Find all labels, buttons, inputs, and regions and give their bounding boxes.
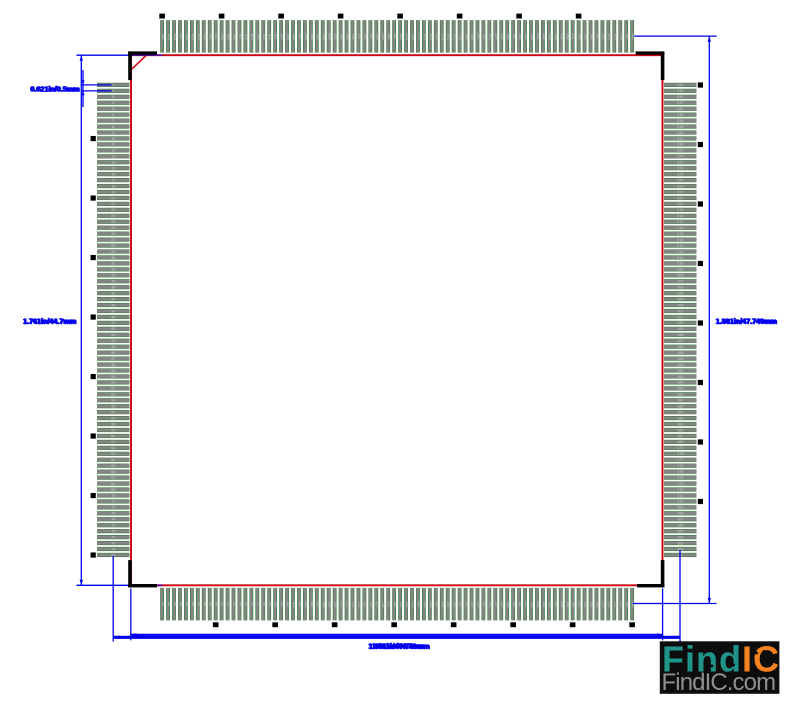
svg-text:51: 51 xyxy=(111,381,115,385)
svg-text:50: 50 xyxy=(111,375,115,379)
svg-text:199: 199 xyxy=(677,327,683,331)
svg-text:224: 224 xyxy=(677,178,683,182)
svg-text:52: 52 xyxy=(111,387,115,391)
svg-text:141: 141 xyxy=(518,601,522,607)
svg-text:245: 245 xyxy=(607,33,611,39)
svg-text:99: 99 xyxy=(268,602,272,606)
svg-text:30: 30 xyxy=(111,256,115,260)
svg-text:320: 320 xyxy=(161,33,165,39)
svg-text:135: 135 xyxy=(482,601,486,607)
svg-text:75: 75 xyxy=(111,524,115,528)
svg-text:67: 67 xyxy=(111,476,115,480)
svg-text:37: 37 xyxy=(111,297,115,301)
svg-text:72: 72 xyxy=(111,506,115,510)
svg-text:144: 144 xyxy=(536,601,540,607)
svg-text:170: 170 xyxy=(677,500,683,504)
svg-text:60: 60 xyxy=(111,434,115,438)
svg-text:123: 123 xyxy=(411,601,415,607)
svg-text:160: 160 xyxy=(631,601,635,607)
svg-text:65: 65 xyxy=(111,464,115,468)
svg-text:212: 212 xyxy=(677,250,683,254)
svg-text:36: 36 xyxy=(111,291,115,295)
svg-text:113: 113 xyxy=(352,601,356,607)
svg-text:102: 102 xyxy=(286,601,290,607)
svg-text:223: 223 xyxy=(677,184,683,188)
svg-text:172: 172 xyxy=(677,488,683,492)
svg-text:40: 40 xyxy=(111,315,115,319)
svg-text:95: 95 xyxy=(244,602,248,606)
svg-text:218: 218 xyxy=(677,214,683,218)
svg-text:2: 2 xyxy=(112,89,114,93)
svg-text:213: 213 xyxy=(677,244,683,248)
svg-text:156: 156 xyxy=(607,601,611,607)
svg-text:309: 309 xyxy=(227,33,231,39)
svg-text:29: 29 xyxy=(111,250,115,254)
svg-text:293: 293 xyxy=(322,33,326,39)
svg-text:117: 117 xyxy=(375,601,379,607)
svg-text:285: 285 xyxy=(369,33,373,39)
svg-text:296: 296 xyxy=(304,33,308,39)
svg-text:263: 263 xyxy=(500,33,504,39)
svg-text:41: 41 xyxy=(111,321,115,325)
svg-text:244: 244 xyxy=(613,33,617,39)
svg-text:217: 217 xyxy=(677,220,683,224)
svg-text:181: 181 xyxy=(677,434,683,438)
svg-text:307: 307 xyxy=(238,33,242,39)
svg-text:281: 281 xyxy=(393,33,397,39)
svg-text:312: 312 xyxy=(209,33,213,39)
svg-text:63: 63 xyxy=(111,452,115,456)
svg-text:210: 210 xyxy=(677,262,683,266)
svg-text:34: 34 xyxy=(111,280,115,284)
svg-text:85: 85 xyxy=(185,602,189,606)
svg-text:298: 298 xyxy=(292,33,296,39)
svg-text:164: 164 xyxy=(677,535,683,539)
svg-text:256: 256 xyxy=(542,33,546,39)
svg-text:250: 250 xyxy=(578,33,582,39)
svg-text:153: 153 xyxy=(590,601,594,607)
svg-text:59: 59 xyxy=(111,428,115,432)
svg-text:126: 126 xyxy=(429,601,433,607)
svg-text:31: 31 xyxy=(111,262,115,266)
svg-text:168: 168 xyxy=(677,512,683,516)
svg-text:83: 83 xyxy=(173,602,177,606)
svg-text:131: 131 xyxy=(459,601,463,607)
svg-text:97: 97 xyxy=(256,602,260,606)
svg-text:8: 8 xyxy=(112,125,114,129)
svg-text:119: 119 xyxy=(387,601,391,607)
svg-text:134: 134 xyxy=(476,601,480,607)
svg-text:303: 303 xyxy=(262,33,266,39)
svg-text:267: 267 xyxy=(476,33,480,39)
svg-text:287: 287 xyxy=(357,33,361,39)
svg-text:103: 103 xyxy=(292,601,296,607)
svg-text:295: 295 xyxy=(310,33,314,39)
svg-text:33: 33 xyxy=(111,274,115,278)
svg-text:184: 184 xyxy=(677,416,683,420)
svg-text:118: 118 xyxy=(381,601,385,607)
svg-text:145: 145 xyxy=(542,601,546,607)
svg-text:310: 310 xyxy=(221,33,225,39)
svg-text:87: 87 xyxy=(197,602,201,606)
svg-text:76: 76 xyxy=(111,529,115,533)
svg-text:259: 259 xyxy=(524,33,528,39)
svg-text:248: 248 xyxy=(590,33,594,39)
svg-text:294: 294 xyxy=(316,33,320,39)
svg-text:253: 253 xyxy=(560,33,564,39)
svg-text:115: 115 xyxy=(363,601,367,607)
svg-text:159: 159 xyxy=(625,601,629,607)
svg-text:315: 315 xyxy=(191,33,195,39)
svg-text:197: 197 xyxy=(677,339,683,343)
svg-text:235: 235 xyxy=(677,113,683,117)
svg-text:7: 7 xyxy=(112,119,114,123)
svg-text:84: 84 xyxy=(179,602,183,606)
svg-text:96: 96 xyxy=(250,602,254,606)
svg-text:169: 169 xyxy=(677,506,683,510)
svg-text:89: 89 xyxy=(209,602,213,606)
svg-text:42: 42 xyxy=(111,327,115,331)
svg-text:21: 21 xyxy=(111,202,115,206)
svg-text:189: 189 xyxy=(677,387,683,391)
svg-text:11: 11 xyxy=(111,143,115,147)
svg-text:314: 314 xyxy=(197,33,201,39)
svg-text:108: 108 xyxy=(322,601,326,607)
svg-text:229: 229 xyxy=(677,149,683,153)
svg-text:288: 288 xyxy=(352,33,356,39)
svg-text:268: 268 xyxy=(471,33,475,39)
svg-text:221: 221 xyxy=(677,196,683,200)
svg-text:149: 149 xyxy=(566,601,570,607)
svg-text:266: 266 xyxy=(482,33,486,39)
svg-text:22: 22 xyxy=(111,208,115,212)
svg-text:273: 273 xyxy=(441,33,445,39)
svg-text:260: 260 xyxy=(518,33,522,39)
svg-text:19: 19 xyxy=(111,190,115,194)
svg-text:173: 173 xyxy=(677,482,683,486)
svg-text:306: 306 xyxy=(244,33,248,39)
svg-text:231: 231 xyxy=(677,137,683,141)
svg-text:FindIC.com: FindIC.com xyxy=(662,669,776,696)
svg-text:297: 297 xyxy=(298,33,302,39)
svg-text:26: 26 xyxy=(111,232,115,236)
svg-text:116: 116 xyxy=(369,601,373,607)
svg-text:25: 25 xyxy=(111,226,115,230)
svg-text:278: 278 xyxy=(411,33,415,39)
svg-text:139: 139 xyxy=(506,601,510,607)
svg-text:185: 185 xyxy=(677,410,683,414)
svg-text:209: 209 xyxy=(677,268,683,272)
svg-text:101: 101 xyxy=(280,601,284,607)
svg-text:155: 155 xyxy=(601,601,605,607)
svg-text:264: 264 xyxy=(494,33,498,39)
svg-text:14: 14 xyxy=(111,161,115,165)
svg-text:6: 6 xyxy=(112,113,114,117)
svg-text:79: 79 xyxy=(111,547,115,551)
svg-text:120: 120 xyxy=(393,601,397,607)
svg-text:187: 187 xyxy=(677,399,683,403)
svg-text:98: 98 xyxy=(262,602,266,606)
svg-text:81: 81 xyxy=(161,602,165,606)
svg-text:154: 154 xyxy=(595,601,599,607)
svg-text:73: 73 xyxy=(111,512,115,516)
svg-text:13: 13 xyxy=(111,155,115,159)
svg-text:107: 107 xyxy=(316,601,320,607)
svg-text:258: 258 xyxy=(530,33,534,39)
svg-text:39: 39 xyxy=(111,309,115,313)
svg-text:308: 308 xyxy=(233,33,237,39)
svg-text:142: 142 xyxy=(524,601,528,607)
svg-text:226: 226 xyxy=(677,167,683,171)
svg-text:18: 18 xyxy=(111,184,115,188)
svg-text:313: 313 xyxy=(203,33,207,39)
svg-text:150: 150 xyxy=(572,601,576,607)
svg-text:163: 163 xyxy=(677,541,683,545)
svg-text:180: 180 xyxy=(677,440,683,444)
svg-text:57: 57 xyxy=(111,416,115,420)
svg-text:148: 148 xyxy=(560,601,564,607)
svg-text:4: 4 xyxy=(112,101,114,105)
svg-text:318: 318 xyxy=(173,33,177,39)
svg-text:243: 243 xyxy=(619,33,623,39)
svg-text:109: 109 xyxy=(328,601,332,607)
svg-text:304: 304 xyxy=(256,33,260,39)
svg-text:195: 195 xyxy=(677,351,683,355)
svg-text:62: 62 xyxy=(111,446,115,450)
svg-text:56: 56 xyxy=(111,410,115,414)
svg-text:261: 261 xyxy=(512,33,516,39)
svg-text:274: 274 xyxy=(435,33,439,39)
svg-text:242: 242 xyxy=(625,33,629,39)
svg-text:277: 277 xyxy=(417,33,421,39)
svg-text:166: 166 xyxy=(677,524,683,528)
svg-text:124: 124 xyxy=(417,601,421,607)
svg-text:179: 179 xyxy=(677,446,683,450)
svg-text:1.761in/44.7mm: 1.761in/44.7mm xyxy=(24,317,77,326)
svg-text:132: 132 xyxy=(465,601,469,607)
svg-text:146: 146 xyxy=(548,601,552,607)
svg-text:289: 289 xyxy=(346,33,350,39)
svg-text:207: 207 xyxy=(677,280,683,284)
svg-text:292: 292 xyxy=(328,33,332,39)
svg-text:106: 106 xyxy=(310,601,314,607)
svg-text:0.021in/0.5mm: 0.021in/0.5mm xyxy=(31,85,80,94)
svg-text:68: 68 xyxy=(111,482,115,486)
svg-text:247: 247 xyxy=(595,33,599,39)
svg-text:71: 71 xyxy=(111,500,115,504)
svg-text:100: 100 xyxy=(274,601,278,607)
svg-text:311: 311 xyxy=(215,33,219,39)
svg-text:91: 91 xyxy=(221,602,225,606)
svg-text:230: 230 xyxy=(677,143,683,147)
svg-text:202: 202 xyxy=(677,309,683,313)
svg-text:78: 78 xyxy=(111,541,115,545)
svg-text:206: 206 xyxy=(677,286,683,290)
svg-text:284: 284 xyxy=(375,33,379,39)
svg-text:140: 140 xyxy=(512,601,516,607)
svg-text:225: 225 xyxy=(677,172,683,176)
svg-text:66: 66 xyxy=(111,470,115,474)
svg-text:201: 201 xyxy=(677,315,683,319)
svg-text:176: 176 xyxy=(677,464,683,468)
svg-text:232: 232 xyxy=(677,131,683,135)
svg-text:317: 317 xyxy=(179,33,183,39)
svg-text:174: 174 xyxy=(677,476,683,480)
svg-text:205: 205 xyxy=(677,291,683,295)
svg-text:121: 121 xyxy=(399,601,403,607)
svg-text:252: 252 xyxy=(566,33,570,39)
svg-text:257: 257 xyxy=(536,33,540,39)
svg-text:110: 110 xyxy=(334,601,338,607)
svg-text:228: 228 xyxy=(677,155,683,159)
svg-text:1.881in/47.749mm: 1.881in/47.749mm xyxy=(369,642,430,651)
svg-text:276: 276 xyxy=(423,33,427,39)
svg-text:47: 47 xyxy=(111,357,115,361)
svg-text:23: 23 xyxy=(111,214,115,218)
svg-text:157: 157 xyxy=(613,601,617,607)
svg-text:55: 55 xyxy=(111,405,115,409)
svg-text:74: 74 xyxy=(111,518,115,522)
svg-text:129: 129 xyxy=(447,601,451,607)
svg-text:182: 182 xyxy=(677,428,683,432)
svg-text:128: 128 xyxy=(441,601,445,607)
svg-text:246: 246 xyxy=(601,33,605,39)
svg-text:92: 92 xyxy=(227,602,231,606)
svg-text:280: 280 xyxy=(399,33,403,39)
svg-text:43: 43 xyxy=(111,333,115,337)
svg-text:239: 239 xyxy=(677,89,683,93)
svg-text:77: 77 xyxy=(111,535,115,539)
svg-text:283: 283 xyxy=(381,33,385,39)
svg-text:186: 186 xyxy=(677,405,683,409)
svg-text:137: 137 xyxy=(494,601,498,607)
svg-text:190: 190 xyxy=(677,381,683,385)
svg-text:299: 299 xyxy=(286,33,290,39)
svg-text:238: 238 xyxy=(677,95,683,99)
svg-text:204: 204 xyxy=(677,297,683,301)
svg-text:136: 136 xyxy=(488,601,492,607)
svg-text:49: 49 xyxy=(111,369,115,373)
svg-text:234: 234 xyxy=(677,119,683,123)
svg-text:319: 319 xyxy=(167,33,171,39)
svg-text:251: 251 xyxy=(572,33,576,39)
svg-text:236: 236 xyxy=(677,107,683,111)
svg-text:143: 143 xyxy=(530,601,534,607)
svg-text:45: 45 xyxy=(111,345,115,349)
svg-text:265: 265 xyxy=(488,33,492,39)
svg-text:203: 203 xyxy=(677,303,683,307)
svg-text:93: 93 xyxy=(233,602,237,606)
svg-text:240: 240 xyxy=(677,83,683,87)
svg-text:114: 114 xyxy=(357,601,361,607)
svg-text:3: 3 xyxy=(112,95,114,99)
svg-text:152: 152 xyxy=(584,601,588,607)
svg-text:227: 227 xyxy=(677,161,683,165)
svg-text:5: 5 xyxy=(112,107,114,111)
svg-text:191: 191 xyxy=(677,375,683,379)
svg-text:282: 282 xyxy=(387,33,391,39)
svg-text:290: 290 xyxy=(340,33,344,39)
svg-text:171: 171 xyxy=(677,494,683,498)
svg-text:270: 270 xyxy=(459,33,463,39)
svg-text:122: 122 xyxy=(405,601,409,607)
svg-text:300: 300 xyxy=(280,33,284,39)
svg-text:305: 305 xyxy=(250,33,254,39)
svg-text:46: 46 xyxy=(111,351,115,355)
svg-text:151: 151 xyxy=(578,601,582,607)
svg-text:255: 255 xyxy=(548,33,552,39)
svg-text:125: 125 xyxy=(423,601,427,607)
svg-text:15: 15 xyxy=(111,167,115,171)
svg-text:16: 16 xyxy=(111,172,115,176)
svg-text:86: 86 xyxy=(191,602,195,606)
svg-text:24: 24 xyxy=(111,220,115,224)
svg-text:275: 275 xyxy=(429,33,433,39)
svg-text:178: 178 xyxy=(677,452,683,456)
svg-text:61: 61 xyxy=(111,440,115,444)
svg-text:301: 301 xyxy=(274,33,278,39)
svg-text:211: 211 xyxy=(677,256,683,260)
svg-text:12: 12 xyxy=(111,149,115,153)
svg-text:237: 237 xyxy=(677,101,683,105)
svg-text:272: 272 xyxy=(447,33,451,39)
svg-text:198: 198 xyxy=(677,333,683,337)
svg-text:194: 194 xyxy=(677,357,683,361)
svg-text:88: 88 xyxy=(203,602,207,606)
svg-text:216: 216 xyxy=(677,226,683,230)
svg-text:291: 291 xyxy=(334,33,338,39)
svg-text:271: 271 xyxy=(453,33,457,39)
svg-text:64: 64 xyxy=(111,458,115,462)
svg-text:302: 302 xyxy=(268,33,272,39)
svg-text:1.881in/47.749mm: 1.881in/47.749mm xyxy=(716,317,777,326)
svg-text:133: 133 xyxy=(471,601,475,607)
svg-text:27: 27 xyxy=(111,238,115,242)
svg-text:279: 279 xyxy=(405,33,409,39)
svg-text:200: 200 xyxy=(677,321,683,325)
svg-text:233: 233 xyxy=(677,125,683,129)
svg-text:286: 286 xyxy=(363,33,367,39)
svg-text:28: 28 xyxy=(111,244,115,248)
svg-text:183: 183 xyxy=(677,422,683,426)
svg-text:94: 94 xyxy=(238,602,242,606)
svg-text:10: 10 xyxy=(111,137,115,141)
svg-text:214: 214 xyxy=(677,238,683,242)
svg-text:69: 69 xyxy=(111,488,115,492)
svg-text:262: 262 xyxy=(506,33,510,39)
svg-text:112: 112 xyxy=(346,601,350,607)
svg-text:127: 127 xyxy=(435,601,439,607)
svg-text:219: 219 xyxy=(677,208,683,212)
svg-text:147: 147 xyxy=(554,601,558,607)
svg-text:90: 90 xyxy=(215,602,219,606)
svg-text:196: 196 xyxy=(677,345,683,349)
svg-text:53: 53 xyxy=(111,393,115,397)
svg-text:215: 215 xyxy=(677,232,683,236)
svg-text:32: 32 xyxy=(111,268,115,272)
svg-text:82: 82 xyxy=(167,602,171,606)
svg-text:35: 35 xyxy=(111,286,115,290)
svg-text:165: 165 xyxy=(677,529,683,533)
svg-text:188: 188 xyxy=(677,393,683,397)
svg-text:44: 44 xyxy=(111,339,115,343)
svg-text:208: 208 xyxy=(677,274,683,278)
svg-text:254: 254 xyxy=(554,33,558,39)
svg-text:193: 193 xyxy=(677,363,683,367)
svg-text:167: 167 xyxy=(677,518,683,522)
svg-text:48: 48 xyxy=(111,363,115,367)
svg-text:316: 316 xyxy=(185,33,189,39)
